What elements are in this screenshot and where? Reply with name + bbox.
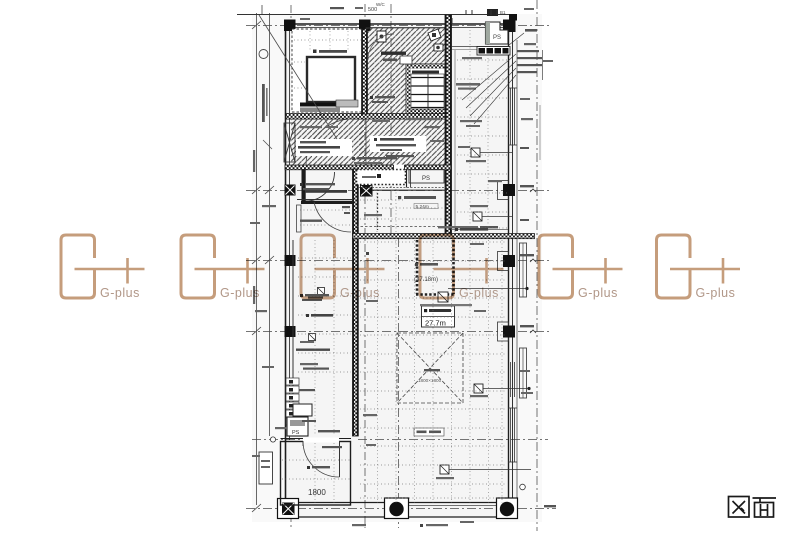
- svg-text:B1: B1: [500, 10, 506, 15]
- svg-text:G-plus: G-plus: [696, 286, 736, 300]
- svg-text:1800: 1800: [308, 488, 326, 497]
- svg-text:500: 500: [368, 7, 377, 13]
- svg-text:27.7m: 27.7m: [425, 319, 446, 328]
- svg-text:G-plus: G-plus: [340, 286, 380, 300]
- svg-text:5.24m: 5.24m: [416, 204, 429, 210]
- svg-text:PS: PS: [292, 430, 300, 436]
- svg-text:1800×1800: 1800×1800: [418, 378, 442, 383]
- svg-text:G-plus: G-plus: [220, 286, 260, 300]
- svg-text:G-plus: G-plus: [459, 286, 499, 300]
- svg-text:PS: PS: [493, 35, 501, 41]
- svg-text:PS: PS: [422, 176, 430, 182]
- svg-text:G-plus: G-plus: [100, 286, 140, 300]
- svg-text:(37.18m): (37.18m): [414, 277, 438, 283]
- svg-text:G-plus: G-plus: [578, 286, 618, 300]
- svg-text:W/C: W/C: [376, 2, 385, 7]
